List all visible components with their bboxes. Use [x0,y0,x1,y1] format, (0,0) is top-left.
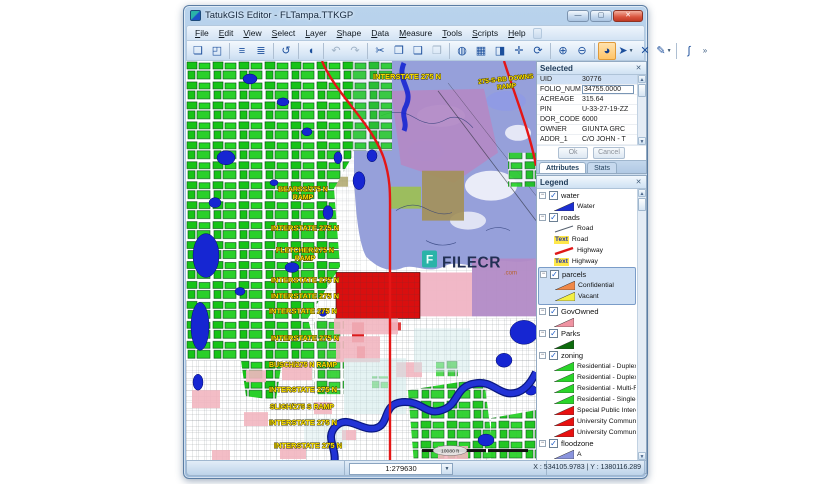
toolbar-overflow-icon[interactable]: » [699,42,711,60]
selected-panel-title: Selected [540,64,573,73]
toolbar-separator [367,43,368,59]
legend-layer-parks: −✓Parks [539,328,636,350]
status-segment-left [187,461,345,475]
layer-name: roads [561,213,580,222]
collapse-icon[interactable]: − [539,352,546,359]
map-road-label: SLIGH/275 S RAMP [270,404,334,411]
text-sample-swatch: Text [554,236,569,244]
attribute-value: C/O JOHN - T [581,136,637,143]
ok-button[interactable]: Ok [558,147,588,159]
menu-item-layer[interactable]: Layer [300,27,331,39]
attribute-value: 30776 [581,76,637,83]
collapse-icon[interactable]: − [539,440,546,447]
selected-panel: Selected ✕ UID30776FOLIO_NUMB34755.0000A… [536,61,647,174]
tab-attributes[interactable]: Attributes [539,162,586,173]
legend-item[interactable]: Residential - Multi-Fa [539,383,636,394]
menu-item-tools[interactable]: Tools [437,27,467,39]
measure-arc-icon[interactable]: ∫ [680,42,698,60]
layer-name: parcels [562,270,586,279]
copy-icon[interactable]: ❐ [390,42,408,60]
triangle-swatch [555,292,575,301]
layer-checkbox[interactable]: ✓ [549,439,558,448]
svg-text:10080 ft: 10080 ft [441,449,460,455]
svg-text:FILECR: FILECR [442,255,501,272]
triangle-swatch [554,373,574,382]
menu-overflow-grip[interactable] [533,28,542,39]
attribute-value: 6000 [581,116,637,123]
title-bar[interactable]: TatukGIS Editor - FLTampa.TTKGP —▢✕ [184,6,647,25]
triangle-swatch [554,202,574,211]
attributes-table: UID30776FOLIO_NUMB34755.0000ACREAGE315.6… [537,75,646,145]
scroll-down-icon[interactable]: ▼ [638,452,646,460]
menu-item-help[interactable]: Help [503,27,530,39]
legend-item-label: University Communit [577,429,636,436]
collapse-icon[interactable]: − [540,271,547,278]
map-road-label: INTERSTATE 275 N [271,275,339,284]
legend-layer-water: −✓waterWater [539,190,636,212]
window-title: TatukGIS Editor - FLTampa.TTKGP [205,10,353,21]
layer-checkbox[interactable]: ✓ [549,191,558,200]
dock-panels: Selected ✕ UID30776FOLIO_NUMB34755.0000A… [536,61,647,465]
toolbar-separator [594,43,595,59]
toolbar-separator [550,43,551,59]
legend-item[interactable]: Residential - Duplex [539,361,636,372]
triangle-swatch [554,340,574,349]
draw-pen-icon[interactable]: ✎▼ [655,42,673,60]
attribute-row[interactable]: ACREAGE315.64 [537,95,637,105]
legend-layer-row[interactable]: −✓roads [539,212,636,223]
map-road-label: INTERSTATE 275 N [274,441,342,450]
triangle-swatch [554,450,574,459]
toolbar-separator [676,43,677,59]
redo-icon[interactable]: ↷ [346,42,364,60]
select-arrow-icon[interactable]: ➤▼ [617,42,635,60]
open-file-icon[interactable]: ◰ [208,42,226,60]
legend-item-label: University Communit [577,418,636,425]
layer-list-icon[interactable]: ≡ [233,42,251,60]
map-road-label: INTERSTATE 275 N [269,306,337,315]
legend-layer-zoning: −✓zoningResidential - DuplexResidential … [539,350,636,438]
legend-layer-row[interactable]: −✓Parks [539,328,636,339]
toolbar-separator [449,43,450,59]
menu-item-data[interactable]: Data [366,27,394,39]
attribute-row[interactable]: UID30776 [537,75,637,85]
app-window: TatukGIS Editor - FLTampa.TTKGP —▢✕ File… [183,5,648,479]
legend-item[interactable] [539,317,636,328]
map-road-label: INTERSTATE 275 N [271,333,339,342]
legend-item-label: A [577,451,582,458]
attribute-field-name: FOLIO_NUMB [537,86,581,93]
attribute-field-name: PIN [537,106,581,113]
legend-item[interactable]: Residential - Duplex [539,372,636,383]
legend-item-label: Highway [572,258,598,265]
new-file-icon[interactable]: ❏ [189,42,207,60]
menu-item-edit[interactable]: Edit [214,27,239,39]
full-extent-icon[interactable]: ◍ [453,42,471,60]
attr-buttons: Ok Cancel [537,145,646,160]
legend-item[interactable]: Residential - Single-F [539,394,636,405]
collapse-icon[interactable]: − [539,214,546,221]
close-icon[interactable]: ✕ [634,64,643,73]
map-canvas[interactable]: 10080 ft F FILECR .com INTERSTATE 275 N2… [186,61,536,465]
app-icon [190,10,201,21]
map-road-label: INTERSTATE 275 N [373,72,441,81]
line-swatch [554,224,574,233]
legend-item[interactable]: TextRoad [539,234,636,245]
coordinates-readout: X : 534105.9783 | Y : 1380116.289 [533,464,641,471]
legend-panel: Legend ✕ −✓waterWater−✓roadsRoadTextRoad… [536,175,647,474]
cut-icon[interactable]: ✂ [371,42,389,60]
legend-item[interactable]: University Communit [539,427,636,438]
shape-info-icon[interactable]: ◖ [302,42,320,60]
legend-layer-govowned: −✓GovOwned [539,306,636,328]
attribute-field-name: UID [537,76,581,83]
layer-name: Parks [561,329,580,338]
legend-item-label: Water [577,203,595,210]
menu-item-scripts[interactable]: Scripts [467,27,503,39]
legend-item-label: Highway [577,247,603,254]
menu-item-file[interactable]: File [190,27,214,39]
legend-item-label: Confidential [578,282,614,289]
undo-icon[interactable]: ↶ [327,42,345,60]
triangle-swatch [555,281,575,290]
legend-item-label: Special Public Interes [577,407,636,414]
layer-checkbox[interactable]: ✓ [549,213,558,222]
triangle-swatch [554,318,574,327]
scroll-thumb[interactable] [638,198,646,211]
legend-item[interactable]: Special Public Interes [539,405,636,416]
window-controls: —▢✕ [567,10,643,22]
attribute-row[interactable]: ADDR_1C/O JOHN - T [537,135,637,145]
legend-item-label: Vacant [578,293,599,300]
svg-text:F: F [426,253,433,267]
map-road-label: INTERSTATE 275 N [269,385,337,394]
attribute-value: 315.64 [581,96,637,103]
maximize-button[interactable]: ▢ [590,10,612,22]
chevron-down-icon[interactable]: ▼ [629,48,634,54]
minimize-button[interactable]: — [567,10,589,22]
toolbar-separator [229,43,230,59]
triangle-swatch [554,406,574,415]
menu-bar: FileEditViewSelectLayerShapeDataMeasureT… [186,25,645,40]
layer-checkbox[interactable]: ✓ [550,270,559,279]
legend-scrollbar[interactable]: ▲ ▼ [637,189,646,460]
attribute-value: 34755.0000 [581,85,637,94]
legend-item-label: Road [577,225,593,232]
attribute-row[interactable]: FOLIO_NUMB34755.0000 [537,85,637,95]
legend-layer-roads: −✓roadsRoadTextRoadHighwayTextHighway [539,212,636,267]
edit-vertices-icon[interactable]: ▦ [472,42,490,60]
paste-special-icon[interactable]: ❒ [428,42,446,60]
scroll-up-icon[interactable]: ▲ [638,189,646,197]
scale-combo[interactable]: 1:279630 ▼ [349,463,453,475]
toolbar-separator [323,43,324,59]
chevron-down-icon[interactable]: ▼ [667,48,672,54]
attribute-row[interactable]: PINU-33-27-19-ZZ [537,105,637,115]
attribute-value-input[interactable]: 34755.0000 [582,85,634,94]
text-sample-swatch: Text [554,258,569,266]
legend-item[interactable]: A [539,449,636,460]
selected-panel-header: Selected ✕ [537,62,646,75]
triangle-swatch [554,362,574,371]
menu-item-view[interactable]: View [238,27,266,39]
layer-name: zoning [561,351,583,360]
legend-item-label: Road [572,236,588,243]
legend-panel-header: Legend ✕ [537,176,646,189]
map-road-label: INTERSTATE 275 N [271,291,339,300]
main-toolbar: ❏◰≡≣↺◖↶↷✂❐❑❒◍▦◨✛⟳⊕⊖◕➤▼✕✎▼∫» [186,40,645,61]
scroll-down-icon[interactable]: ▼ [638,137,646,145]
menu-item-shape[interactable]: Shape [332,27,367,39]
legend-item[interactable]: University Communit [539,416,636,427]
legend-item[interactable]: Water [539,201,636,212]
legend-tree: −✓waterWater−✓roadsRoadTextRoadHighwayTe… [537,189,646,460]
attribute-row[interactable]: DOR_CODE6000 [537,115,637,125]
close-button[interactable]: ✕ [613,10,643,22]
attribute-field-name: DOR_CODE [537,116,581,123]
collapse-icon[interactable]: − [539,192,546,199]
attribute-row[interactable]: OWNERGIUNTA GRC [537,125,637,135]
zoom-mode-icon[interactable]: ◕ [598,42,616,60]
legend-layer-row[interactable]: −✓zoning [539,350,636,361]
cancel-button[interactable]: Cancel [593,147,625,159]
layer-name: water [561,191,579,200]
menu-item-select[interactable]: Select [267,27,301,39]
svg-text:.com: .com [504,270,517,276]
tab-stats[interactable]: Stats [587,162,617,173]
legend-item-label: Residential - Single-F [577,396,636,403]
layer-checkbox[interactable]: ✓ [549,351,558,360]
legend-item-label: Residential - Duplex [577,374,636,381]
map-road-label: BUSCH/275 N RAMP [269,362,337,369]
chevron-down-icon[interactable]: ▼ [441,464,452,474]
map-view[interactable]: 10080 ft F FILECR .com INTERSTATE 275 N2… [186,61,536,465]
pan-arrows-icon[interactable]: ✛ [510,42,528,60]
scroll-up-icon[interactable]: ▲ [638,75,646,83]
legend-item[interactable] [539,339,636,350]
legend-layer-parcels: −✓parcelsConfidentialVacant [538,267,636,305]
layer-properties-icon[interactable]: ≣ [252,42,270,60]
zoom-in-icon[interactable]: ⊕ [554,42,572,60]
triangle-swatch [554,395,574,404]
attribute-field-name: ADDR_1 [537,136,581,143]
triangle-swatch [554,384,574,393]
legend-layer-row[interactable]: −✓floodzone [539,438,636,449]
layer-checkbox[interactable]: ✓ [549,307,558,316]
client-area: 10080 ft F FILECR .com INTERSTATE 275 N2… [186,61,647,465]
attribute-value: GIUNTA GRC [581,126,637,133]
legend-item-label: Residential - Multi-Fa [577,385,636,392]
attribute-field-name: OWNER [537,126,581,133]
layer-name: GovOwned [561,307,599,316]
legend-item-label: Residential - Duplex [577,363,636,370]
legend-item[interactable]: Road [539,223,636,234]
legend-item[interactable]: Confidential [540,280,635,291]
toolbar-separator [273,43,274,59]
menu-item-measure[interactable]: Measure [394,27,437,39]
legend-item[interactable]: Vacant [540,291,635,302]
collapse-icon[interactable]: − [539,330,546,337]
scale-value: 1:279630 [385,464,416,473]
map-road-label: INTERSTATE 275 N [271,224,339,233]
layer-name: floodzone [561,439,594,448]
paste-icon[interactable]: ❑ [409,42,427,60]
legend-item[interactable]: Highway [539,245,636,256]
legend-layer-row[interactable]: −✓water [539,190,636,201]
triangle-swatch [554,428,574,437]
legend-item[interactable]: TextHighway [539,256,636,267]
legend-layer-row[interactable]: −✓parcels [540,269,635,280]
legend-panel-title: Legend [540,178,568,187]
map-road-label: INTERSTATE 275 N [269,418,337,427]
attributes-scrollbar[interactable]: ▲ ▼ [637,75,646,145]
scroll-thumb[interactable] [638,84,646,97]
legend-layer-row[interactable]: −✓GovOwned [539,306,636,317]
line-swatch [554,246,574,255]
toolbar-separator [298,43,299,59]
collapse-icon[interactable]: − [539,308,546,315]
legend-layer-floodzone: −✓floodzoneA [539,438,636,460]
zoom-out-icon[interactable]: ⊖ [573,42,591,60]
attribute-value: U-33-27-19-ZZ [581,106,637,113]
preview-icon[interactable]: ◨ [491,42,509,60]
refresh-icon[interactable]: ⟳ [529,42,547,60]
close-icon[interactable]: ✕ [634,178,643,187]
status-bar: 1:279630 ▼ X : 534105.9783 | Y : 1380116… [186,460,645,476]
deselect-icon[interactable]: ✕ [636,42,654,60]
attribute-field-name: ACREAGE [537,96,581,103]
selected-panel-tabs: AttributesStats [537,160,646,173]
triangle-swatch [554,417,574,426]
revert-icon[interactable]: ↺ [277,42,295,60]
layer-checkbox[interactable]: ✓ [549,329,558,338]
